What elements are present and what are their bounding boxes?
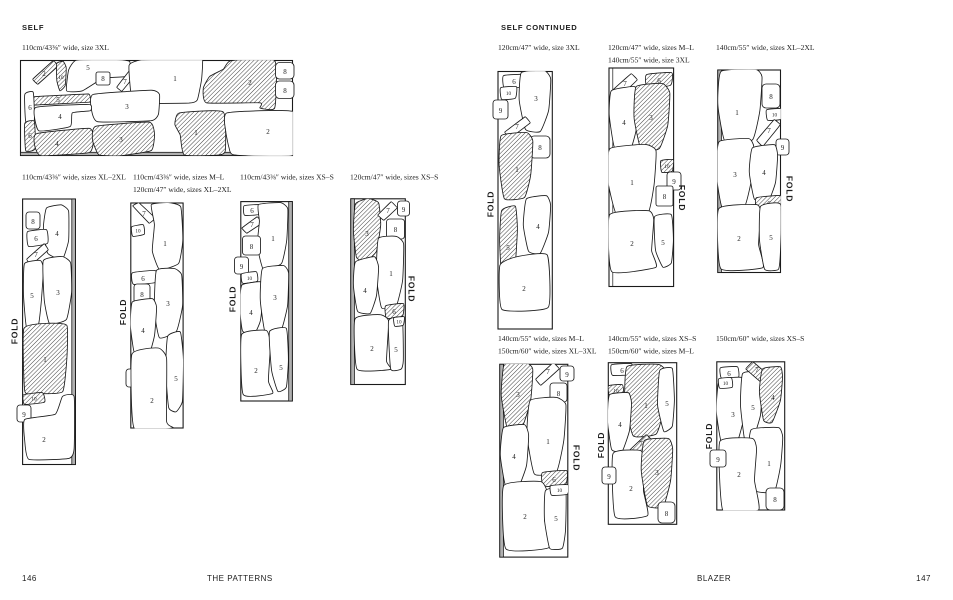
svg-text:3: 3 [56,289,60,297]
svg-text:8: 8 [101,75,105,83]
svg-text:10: 10 [135,229,141,235]
svg-text:6: 6 [512,78,516,86]
svg-text:1: 1 [644,402,648,410]
svg-text:10: 10 [58,75,64,81]
svg-text:147: 147 [916,574,931,583]
svg-text:140cm/55″ wide, sizes XL–2XL: 140cm/55″ wide, sizes XL–2XL [716,43,815,52]
svg-text:2: 2 [266,128,270,136]
svg-text:2: 2 [737,471,741,479]
svg-text:4: 4 [618,421,622,429]
svg-text:1: 1 [546,438,550,446]
svg-text:1: 1 [515,166,519,174]
svg-text:9: 9 [781,144,785,152]
svg-text:3: 3 [655,469,659,477]
svg-text:9: 9 [240,263,244,271]
svg-text:110cm/43⅜″ wide, sizes M–L: 110cm/43⅜″ wide, sizes M–L [133,173,225,182]
svg-text:3: 3 [649,114,653,122]
svg-text:FOLD: FOLD [486,191,496,218]
svg-text:FOLD: FOLD [704,423,714,450]
svg-text:9: 9 [22,411,26,419]
svg-text:150cm/60″ wide, sizes XL–3XL: 150cm/60″ wide, sizes XL–3XL [498,347,597,356]
svg-text:8: 8 [140,291,144,299]
svg-text:10: 10 [772,113,778,119]
svg-text:8: 8 [283,87,287,95]
svg-text:10: 10 [247,276,253,282]
svg-text:4: 4 [55,140,59,148]
svg-text:FOLD: FOLD [572,445,582,472]
svg-text:9: 9 [499,107,503,115]
svg-text:120cm/47″ wide, size 3XL: 120cm/47″ wide, size 3XL [498,43,580,52]
svg-text:8: 8 [663,193,667,201]
svg-text:9: 9 [672,178,676,186]
svg-text:SELF CONTINUED: SELF CONTINUED [501,23,577,32]
svg-text:8: 8 [394,226,398,234]
svg-text:150cm/60″ wide, sizes XS–S: 150cm/60″ wide, sizes XS–S [716,334,804,343]
svg-text:7: 7 [515,123,519,131]
svg-text:6: 6 [250,207,254,215]
svg-text:5: 5 [394,346,398,354]
svg-text:9: 9 [607,473,611,481]
svg-text:9: 9 [402,206,406,214]
svg-text:8: 8 [665,510,669,518]
svg-text:FOLD: FOLD [785,176,795,203]
svg-text:3: 3 [365,230,369,238]
svg-text:6: 6 [34,235,38,243]
svg-text:8: 8 [769,93,773,101]
svg-text:110cm/43⅜″ wide, sizes XL–2XL: 110cm/43⅜″ wide, sizes XL–2XL [22,173,126,182]
svg-text:8: 8 [773,496,777,504]
svg-text:2: 2 [737,235,741,243]
svg-text:5: 5 [751,404,755,412]
svg-text:4: 4 [363,287,367,295]
svg-text:7: 7 [546,368,550,376]
svg-text:FOLD: FOLD [677,185,687,212]
svg-text:3: 3 [733,171,737,179]
svg-text:BLAZER: BLAZER [697,574,731,583]
svg-text:FOLD: FOLD [118,299,128,326]
svg-text:6: 6 [620,367,624,375]
svg-text:7: 7 [767,127,771,135]
svg-text:7: 7 [250,221,254,229]
svg-text:3: 3 [273,294,277,302]
svg-text:5: 5 [661,239,665,247]
svg-text:3: 3 [516,391,520,399]
svg-text:8: 8 [283,68,287,76]
svg-text:5: 5 [769,234,773,242]
svg-text:10: 10 [557,488,563,494]
svg-text:3: 3 [125,103,129,111]
svg-text:8: 8 [31,218,35,226]
svg-text:THE PATTERNS: THE PATTERNS [207,574,273,583]
svg-text:10: 10 [396,320,402,326]
svg-text:1: 1 [194,129,198,137]
svg-text:5: 5 [30,292,34,300]
svg-text:4: 4 [536,223,540,231]
svg-text:1: 1 [389,270,393,278]
svg-text:140cm/55″ wide, sizes XS–S: 140cm/55″ wide, sizes XS–S [608,334,696,343]
svg-text:9: 9 [565,371,569,379]
svg-text:6: 6 [727,370,731,378]
svg-text:6: 6 [392,308,396,316]
svg-text:8: 8 [250,243,254,251]
svg-text:6: 6 [28,132,32,140]
svg-text:7: 7 [386,207,390,215]
svg-text:5: 5 [279,364,283,372]
svg-text:8: 8 [538,144,542,152]
svg-text:9: 9 [716,456,720,464]
svg-text:4: 4 [55,230,59,238]
svg-text:110cm/43⅜″ wide, sizes XS–S: 110cm/43⅜″ wide, sizes XS–S [240,173,334,182]
svg-text:4: 4 [249,309,253,317]
svg-text:8: 8 [557,390,561,398]
svg-text:2: 2 [42,70,46,78]
svg-text:3: 3 [166,300,170,308]
svg-text:5: 5 [665,400,669,408]
svg-text:10: 10 [31,397,37,403]
svg-text:6: 6 [141,275,145,283]
svg-text:FOLD: FOLD [407,276,417,303]
svg-text:FOLD: FOLD [10,318,20,345]
svg-text:120cm/47″ wide, sizes XL–2XL: 120cm/47″ wide, sizes XL–2XL [133,185,232,194]
svg-text:1: 1 [271,235,275,243]
svg-text:4: 4 [771,394,775,402]
svg-text:3: 3 [119,136,123,144]
svg-text:140cm/55″ wide, sizes M–L: 140cm/55″ wide, sizes M–L [498,334,584,343]
svg-text:2: 2 [150,397,154,405]
svg-text:1: 1 [735,109,739,117]
svg-text:5: 5 [554,515,558,523]
svg-text:2: 2 [523,513,527,521]
svg-text:3: 3 [731,411,735,419]
svg-text:1: 1 [43,356,47,364]
svg-text:4: 4 [622,119,626,127]
svg-text:4: 4 [512,453,516,461]
svg-text:120cm/47″ wide, sizes M–L: 120cm/47″ wide, sizes M–L [608,43,694,52]
svg-text:4: 4 [58,113,62,121]
svg-text:140cm/55″ wide, size 3XL: 140cm/55″ wide, size 3XL [608,56,690,65]
svg-text:4: 4 [762,169,766,177]
svg-text:5: 5 [86,64,90,72]
svg-text:120cm/47″ wide, sizes XS–S: 120cm/47″ wide, sizes XS–S [350,173,438,182]
svg-text:2: 2 [248,79,252,87]
svg-text:6: 6 [552,476,556,484]
svg-text:SELF: SELF [22,23,44,32]
svg-text:3: 3 [534,95,538,103]
svg-text:5: 5 [506,244,510,252]
svg-text:2: 2 [629,485,633,493]
svg-text:2: 2 [42,436,46,444]
svg-text:FOLD: FOLD [596,432,606,459]
svg-text:FOLD: FOLD [228,286,238,313]
svg-text:2: 2 [630,240,634,248]
svg-text:2: 2 [254,367,258,375]
svg-text:2: 2 [370,345,374,353]
svg-text:2: 2 [522,285,526,293]
svg-text:110cm/43⅜″ wide, size 3XL: 110cm/43⅜″ wide, size 3XL [22,43,109,52]
svg-text:150cm/60″ wide, sizes M–L: 150cm/60″ wide, sizes M–L [608,347,694,356]
svg-text:1: 1 [173,75,177,83]
svg-text:5: 5 [56,96,60,104]
svg-text:1: 1 [767,460,771,468]
svg-text:10: 10 [506,91,512,97]
svg-text:1: 1 [630,179,634,187]
svg-text:7: 7 [34,251,38,259]
svg-text:7: 7 [142,210,146,218]
svg-text:10: 10 [723,381,729,387]
svg-text:4: 4 [141,327,145,335]
svg-text:146: 146 [22,574,37,583]
svg-text:6: 6 [28,104,32,112]
svg-text:5: 5 [174,375,178,383]
svg-text:10: 10 [664,164,670,170]
svg-text:7: 7 [755,366,759,374]
svg-text:1: 1 [163,240,167,248]
svg-text:7: 7 [123,78,127,86]
